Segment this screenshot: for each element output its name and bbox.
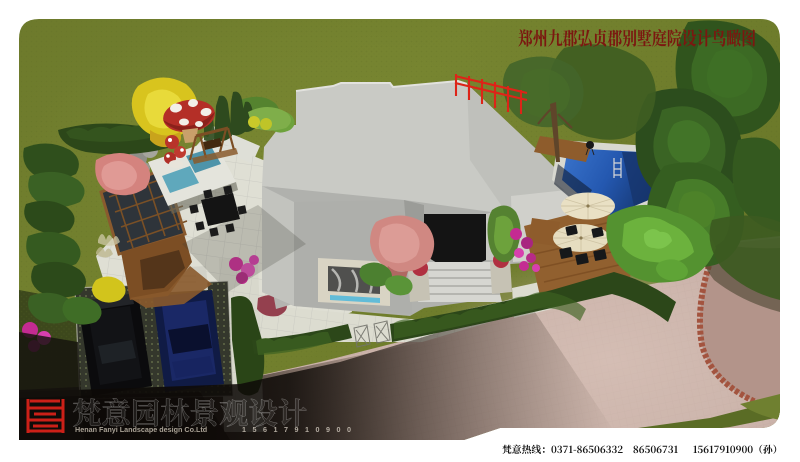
svg-text:15617910900: 15617910900 <box>242 425 357 434</box>
svg-text:Henan Fanyi Landscape design C: Henan Fanyi Landscape design Co.Ltd <box>75 425 207 434</box>
